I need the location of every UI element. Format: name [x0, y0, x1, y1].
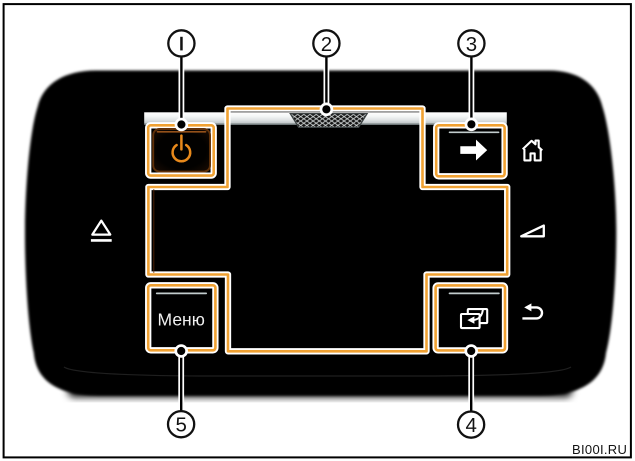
- svg-text:2: 2: [321, 33, 332, 56]
- svg-text:4: 4: [465, 414, 476, 437]
- svg-text:3: 3: [466, 33, 477, 56]
- svg-text:Меню: Меню: [158, 310, 205, 330]
- svg-text:5: 5: [175, 414, 186, 437]
- svg-text:BI00I.RU: BI00I.RU: [572, 442, 627, 457]
